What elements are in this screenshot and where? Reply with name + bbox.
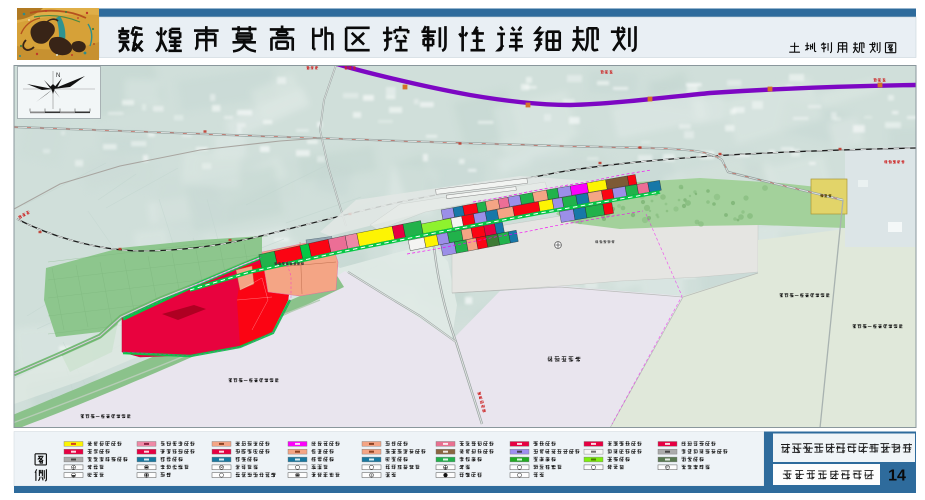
- svg-text:14: 14: [888, 468, 906, 485]
- svg-text:N: N: [56, 73, 60, 79]
- svg-text:8: 8: [371, 473, 373, 477]
